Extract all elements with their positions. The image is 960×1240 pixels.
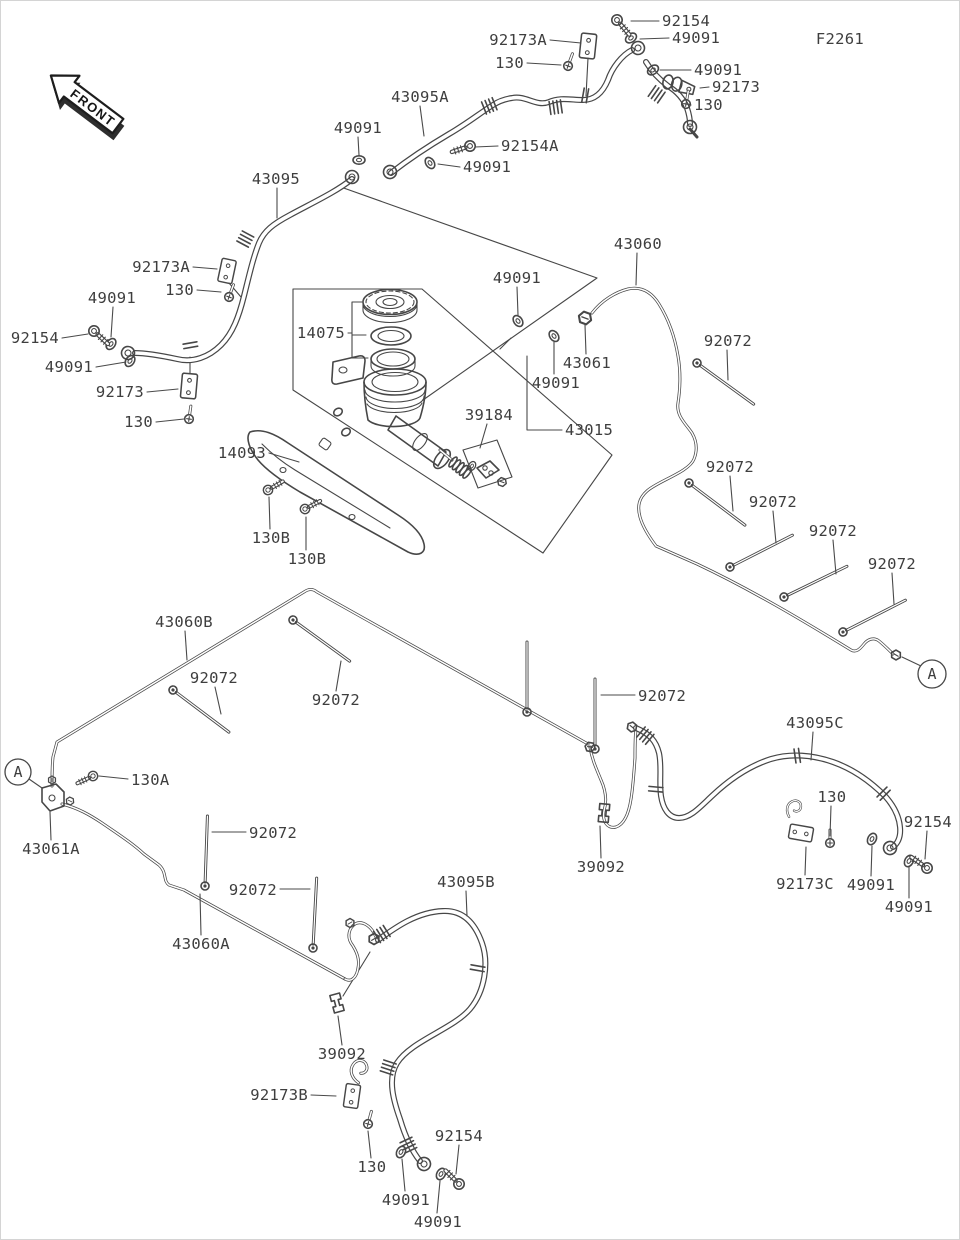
part-label-43095B: 43095B: [437, 873, 495, 891]
part-label-43060B: 43060B: [155, 613, 213, 631]
part-label-130A: 130A: [131, 771, 170, 789]
part-label-39092: 39092: [577, 858, 625, 876]
part-label-49091: 49091: [694, 61, 742, 79]
part-label-14075: 14075: [297, 324, 345, 342]
part-label-92173: 92173: [712, 78, 760, 96]
part-label-49091: 49091: [382, 1191, 430, 1209]
part-label-130B: 130B: [288, 550, 327, 568]
part-label-92173C: 92173C: [776, 875, 834, 893]
parts-diagram-page: FRONT: [0, 0, 960, 1240]
part-label-43095C: 43095C: [786, 714, 844, 732]
part-label-92072: 92072: [704, 332, 752, 350]
part-label-92173A: 92173A: [489, 31, 547, 49]
part-label-92154A: 92154A: [501, 137, 559, 155]
part-label-49091: 49091: [463, 158, 511, 176]
page-border: [1, 1, 960, 1240]
part-label-49091: 49091: [885, 898, 933, 916]
part-label-49091: 49091: [493, 269, 541, 287]
part-label-130: 130: [165, 281, 194, 299]
part-label-43060: 43060: [614, 235, 662, 253]
view-callout-label: A: [13, 763, 22, 781]
part-label-130: 130: [124, 413, 153, 431]
view-callout-label: A: [927, 665, 936, 683]
part-label-130: 130: [495, 54, 524, 72]
part-label-14093: 14093: [218, 444, 266, 462]
parts-diagram-canvas: FRONT: [0, 0, 960, 1240]
part-label-49091: 49091: [88, 289, 136, 307]
part-label-49091: 49091: [45, 358, 93, 376]
part-label-92072: 92072: [312, 691, 360, 709]
part-label-49091: 49091: [414, 1213, 462, 1231]
part-label-43095A: 43095A: [391, 88, 449, 106]
part-label-92072: 92072: [749, 493, 797, 511]
part-label-92173: 92173: [96, 383, 144, 401]
part-label-43015: 43015: [565, 421, 613, 439]
part-label-92154: 92154: [904, 813, 952, 831]
part-label-92072: 92072: [638, 687, 686, 705]
part-label-F2261: F2261: [816, 30, 864, 48]
part-label-130: 130: [694, 96, 723, 114]
part-label-43060A: 43060A: [172, 935, 230, 953]
part-label-92072: 92072: [706, 458, 754, 476]
part-label-92154: 92154: [435, 1127, 483, 1145]
part-label-92072: 92072: [249, 824, 297, 842]
part-label-92072: 92072: [868, 555, 916, 573]
part-label-92072: 92072: [229, 881, 277, 899]
part-label-43095: 43095: [252, 170, 300, 188]
part-label-49091: 49091: [672, 29, 720, 47]
part-label-92072: 92072: [809, 522, 857, 540]
part-label-43061A: 43061A: [22, 840, 80, 858]
part-label-49091: 49091: [847, 876, 895, 894]
part-label-43061: 43061: [563, 354, 611, 372]
part-label-39092: 39092: [318, 1045, 366, 1063]
part-label-92072: 92072: [190, 669, 238, 687]
part-label-130B: 130B: [252, 529, 291, 547]
part-label-92154: 92154: [662, 12, 710, 30]
part-label-49091: 49091: [334, 119, 382, 137]
part-label-92173A: 92173A: [132, 258, 190, 276]
part-label-92173B: 92173B: [250, 1086, 308, 1104]
part-label-130: 130: [818, 788, 847, 806]
part-label-92154: 92154: [11, 329, 59, 347]
part-label-130: 130: [358, 1158, 387, 1176]
part-label-49091: 49091: [532, 374, 580, 392]
part-label-39184: 39184: [465, 406, 513, 424]
